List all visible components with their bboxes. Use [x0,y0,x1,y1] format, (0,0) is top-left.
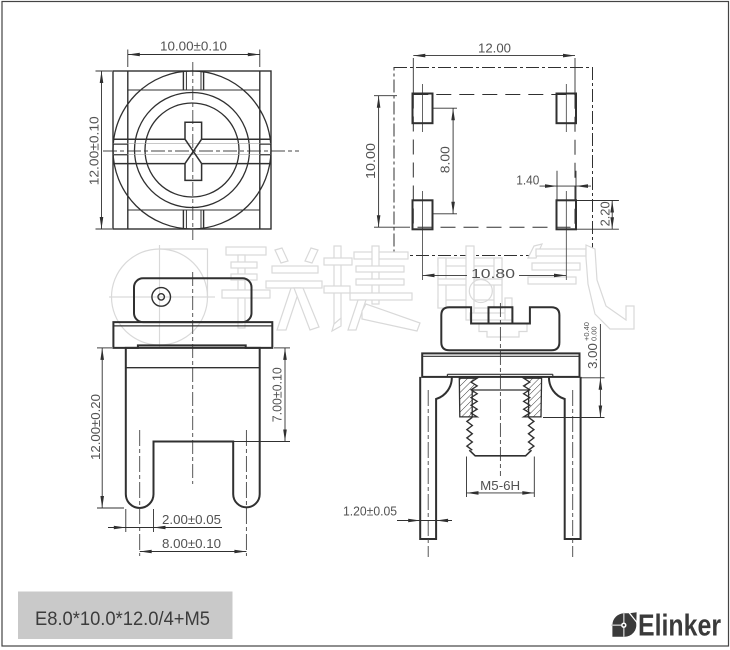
svg-text:1.20±0.05: 1.20±0.05 [343,504,397,519]
svg-text:2.00±0.05: 2.00±0.05 [162,512,221,527]
svg-text:0.00: 0.00 [589,326,598,341]
svg-text:12.00±0.10: 12.00±0.10 [87,116,102,185]
svg-text:E8.0*10.0*12.0/4+M5: E8.0*10.0*12.0/4+M5 [35,608,210,630]
svg-text:2.20: 2.20 [598,201,613,226]
svg-text:3.00: 3.00 [585,343,600,369]
svg-text:1.40: 1.40 [516,172,539,187]
svg-text:8.00±0.10: 8.00±0.10 [162,536,221,551]
svg-text:12.00±0.20: 12.00±0.20 [88,394,103,460]
svg-text:M5-6H: M5-6H [480,478,520,493]
svg-text:10.00: 10.00 [363,143,378,179]
svg-text:8.00: 8.00 [438,146,453,173]
svg-text:Elinker: Elinker [638,609,721,643]
svg-text:10.80: 10.80 [471,266,515,281]
svg-text:12.00: 12.00 [478,41,511,56]
svg-text:10.00±0.10: 10.00±0.10 [160,39,227,54]
svg-text:7.00±0.10: 7.00±0.10 [270,367,285,422]
